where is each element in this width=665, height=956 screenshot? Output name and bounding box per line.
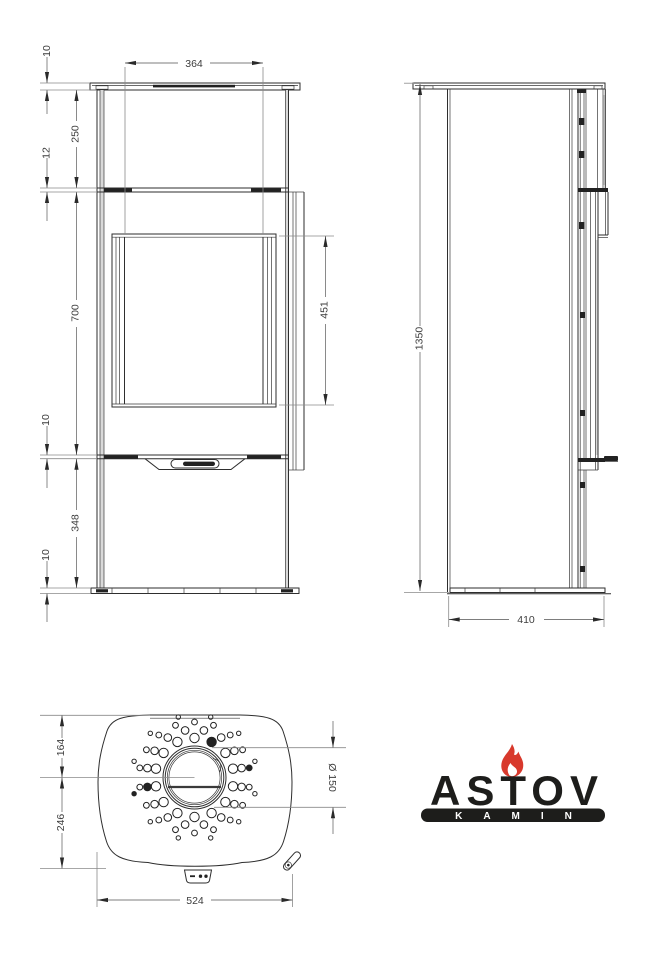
dim-front-shelf: 12 (41, 147, 53, 159)
front-view-dimensions: 364 10 250 12 700 10 348 10 451 (40, 45, 334, 622)
dim-top-width: 524 (186, 895, 204, 907)
brand-tagline: KAMIN (455, 811, 593, 822)
dim-front-glass-height: 451 (319, 301, 331, 319)
dim-front-top-plate: 10 (41, 45, 53, 57)
brand-logo: ASTOV KAMIN (421, 744, 605, 822)
side-view-dimensions: 1350 410 (404, 83, 604, 627)
side-view: 1350 410 (404, 83, 618, 627)
technical-drawing: 364 10 250 12 700 10 348 10 451 (0, 0, 665, 956)
brand-name: ASTOV (430, 767, 604, 814)
top-view-dimensions: 164 246 524 Ø 150 (40, 715, 346, 907)
dim-top-flue-to-front: 246 (55, 814, 67, 832)
dim-top-back-to-flue: 164 (55, 739, 67, 757)
dim-front-glass-width: 364 (185, 58, 203, 70)
dim-front-base-plate: 10 (40, 549, 52, 561)
side-view-linework (413, 83, 618, 594)
front-view-linework (90, 83, 304, 594)
dim-front-gap: 10 (40, 414, 52, 426)
dim-top-flue-diameter: Ø 150 (326, 763, 338, 792)
dim-front-door-section: 700 (70, 304, 82, 322)
dim-front-top-section: 250 (70, 125, 82, 143)
top-view-linework (98, 715, 302, 883)
dim-side-height: 1350 (414, 327, 426, 351)
dim-side-depth: 410 (517, 614, 535, 626)
front-view: 364 10 250 12 700 10 348 10 451 (40, 45, 334, 622)
drawing-canvas: 364 10 250 12 700 10 348 10 451 (0, 0, 665, 956)
door-latch (282, 850, 302, 871)
dim-front-base-section: 348 (70, 514, 82, 532)
top-view: 164 246 524 Ø 150 (40, 715, 346, 907)
